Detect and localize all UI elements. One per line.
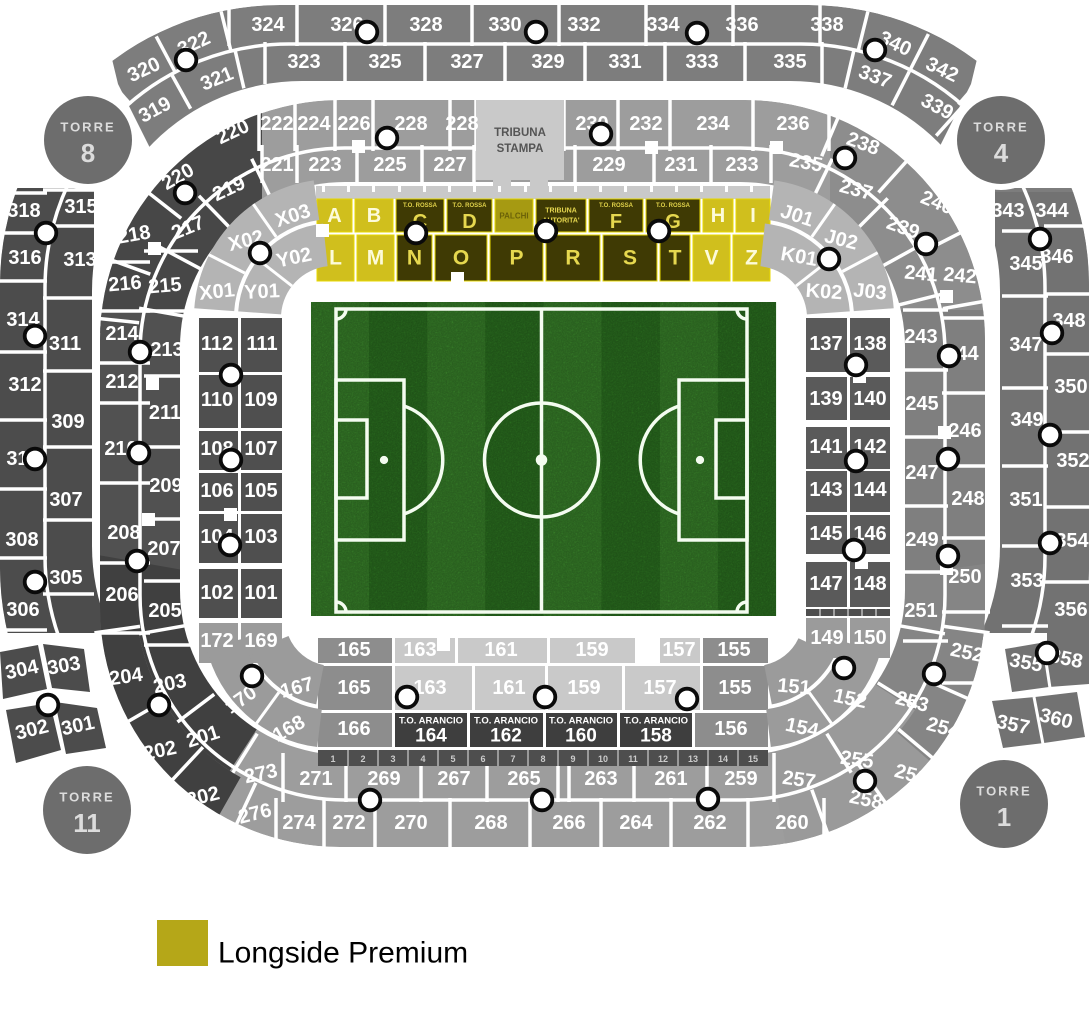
svg-text:1: 1 [330, 754, 335, 764]
svg-text:309: 309 [51, 411, 84, 433]
svg-text:261: 261 [654, 768, 687, 790]
svg-text:212: 212 [105, 371, 138, 393]
svg-text:270: 270 [394, 812, 427, 834]
svg-text:157: 157 [662, 639, 695, 661]
svg-text:325: 325 [368, 51, 401, 73]
svg-text:162: 162 [490, 726, 522, 747]
svg-text:223: 223 [308, 154, 341, 176]
svg-text:172: 172 [200, 630, 233, 652]
svg-text:6: 6 [480, 754, 485, 764]
svg-text:260: 260 [775, 812, 808, 834]
svg-text:226: 226 [337, 113, 370, 135]
svg-text:328: 328 [409, 14, 442, 36]
svg-text:159: 159 [575, 639, 608, 661]
svg-text:PALCHI: PALCHI [499, 212, 528, 221]
svg-text:139: 139 [809, 388, 842, 410]
svg-text:112: 112 [201, 333, 233, 355]
svg-text:103: 103 [244, 526, 277, 548]
svg-text:333: 333 [685, 51, 718, 73]
svg-text:271: 271 [299, 768, 332, 790]
svg-text:227: 227 [433, 154, 466, 176]
svg-text:247: 247 [905, 462, 938, 484]
svg-text:158: 158 [640, 726, 672, 747]
svg-text:T.O. ROSSA: T.O. ROSSA [599, 203, 634, 209]
svg-text:349: 349 [1010, 409, 1043, 431]
svg-text:315: 315 [64, 196, 97, 218]
svg-text:207: 207 [147, 538, 180, 560]
svg-text:347: 347 [1009, 334, 1042, 356]
svg-text:TORRE: TORRE [973, 120, 1028, 135]
svg-text:M: M [367, 247, 385, 270]
svg-text:150: 150 [853, 627, 886, 649]
svg-text:T.O. ROSSA: T.O. ROSSA [656, 203, 691, 209]
svg-text:141: 141 [809, 436, 842, 458]
svg-text:TRIBUNA: TRIBUNA [545, 208, 577, 215]
svg-text:N: N [407, 247, 422, 270]
svg-text:TORRE: TORRE [59, 790, 114, 805]
svg-text:12: 12 [658, 754, 668, 764]
svg-text:2: 2 [360, 754, 365, 764]
svg-text:A: A [327, 205, 341, 227]
svg-text:335: 335 [773, 51, 806, 73]
svg-text:324: 324 [251, 14, 285, 36]
svg-text:259: 259 [724, 768, 757, 790]
svg-text:3: 3 [390, 754, 395, 764]
svg-text:268: 268 [474, 812, 507, 834]
svg-text:311: 311 [49, 333, 81, 355]
svg-text:O: O [453, 247, 469, 270]
svg-text:336: 336 [725, 14, 758, 36]
svg-text:353: 353 [1010, 570, 1043, 592]
svg-text:329: 329 [531, 51, 564, 73]
svg-text:T.O. ROSSA: T.O. ROSSA [403, 203, 438, 209]
svg-text:5: 5 [450, 754, 455, 764]
svg-text:251: 251 [904, 600, 937, 622]
svg-text:305: 305 [49, 567, 82, 589]
svg-text:140: 140 [853, 388, 886, 410]
svg-text:225: 225 [373, 154, 406, 176]
svg-text:312: 312 [8, 374, 41, 396]
svg-text:11: 11 [73, 808, 101, 838]
svg-text:228: 228 [445, 113, 478, 135]
svg-text:143: 143 [809, 479, 842, 501]
svg-text:Z: Z [745, 247, 758, 270]
svg-text:228: 228 [394, 113, 427, 135]
svg-text:156: 156 [714, 718, 747, 740]
svg-text:307: 307 [49, 489, 82, 511]
svg-text:211: 211 [149, 402, 181, 424]
svg-text:327: 327 [450, 51, 483, 73]
svg-text:233: 233 [725, 154, 758, 176]
svg-text:159: 159 [567, 677, 600, 699]
svg-text:330: 330 [488, 14, 521, 36]
svg-text:246: 246 [948, 420, 981, 442]
svg-text:255: 255 [839, 747, 875, 773]
svg-text:165: 165 [337, 677, 370, 699]
svg-text:356: 356 [1054, 599, 1087, 621]
svg-text:316: 316 [8, 247, 41, 269]
svg-text:106: 106 [200, 480, 233, 502]
svg-text:4: 4 [420, 754, 425, 764]
svg-text:111: 111 [246, 333, 277, 355]
svg-text:344: 344 [1035, 200, 1069, 222]
svg-text:107: 107 [244, 438, 277, 460]
svg-text:155: 155 [717, 639, 750, 661]
svg-text:308: 308 [5, 529, 38, 551]
svg-text:11: 11 [628, 754, 638, 764]
svg-text:351: 351 [1009, 489, 1042, 511]
svg-text:TRIBUNA: TRIBUNA [494, 127, 546, 139]
svg-text:229: 229 [592, 154, 625, 176]
svg-text:105: 105 [244, 480, 277, 502]
svg-text:323: 323 [287, 51, 320, 73]
svg-text:331: 331 [608, 51, 641, 73]
svg-text:T: T [669, 247, 682, 270]
svg-text:144: 144 [853, 479, 887, 501]
svg-text:313: 313 [63, 249, 96, 271]
svg-text:241: 241 [903, 262, 938, 287]
svg-text:215: 215 [147, 274, 182, 299]
svg-text:208: 208 [107, 522, 140, 544]
svg-text:V: V [704, 247, 718, 270]
svg-text:272: 272 [332, 812, 365, 834]
svg-text:145: 145 [809, 523, 842, 545]
svg-text:232: 232 [629, 113, 662, 135]
svg-text:269: 269 [367, 768, 400, 790]
svg-text:S: S [623, 247, 637, 270]
svg-text:338: 338 [810, 14, 843, 36]
svg-text:161: 161 [492, 677, 525, 699]
svg-text:137: 137 [809, 333, 842, 355]
svg-text:L: L [329, 247, 342, 270]
svg-text:332: 332 [567, 14, 600, 36]
svg-text:231: 231 [664, 154, 697, 176]
svg-text:243: 243 [904, 326, 937, 348]
svg-text:306: 306 [6, 599, 39, 621]
svg-text:350: 350 [1054, 376, 1087, 398]
svg-text:138: 138 [853, 333, 886, 355]
svg-text:Y01: Y01 [244, 280, 281, 304]
svg-text:209: 209 [149, 475, 182, 497]
svg-text:166: 166 [337, 718, 370, 740]
svg-text:T.O. ROSSA: T.O. ROSSA [452, 203, 487, 209]
svg-text:242: 242 [942, 264, 977, 289]
svg-text:343: 343 [991, 200, 1024, 222]
svg-text:221: 221 [260, 154, 293, 176]
svg-text:102: 102 [200, 582, 233, 604]
svg-text:Longside Premium: Longside Premium [218, 937, 468, 970]
svg-text:151: 151 [776, 675, 811, 700]
svg-text:265: 265 [507, 768, 540, 790]
svg-text:213: 213 [150, 339, 183, 361]
svg-text:257: 257 [781, 767, 817, 793]
svg-text:160: 160 [565, 726, 597, 747]
svg-text:D: D [462, 211, 476, 233]
svg-text:163: 163 [403, 639, 436, 661]
svg-text:F: F [610, 211, 622, 233]
svg-text:B: B [367, 205, 381, 227]
svg-text:274: 274 [282, 812, 316, 834]
svg-text:109: 109 [244, 389, 277, 411]
svg-text:234: 234 [696, 113, 730, 135]
svg-text:155: 155 [718, 677, 751, 699]
svg-text:264: 264 [619, 812, 653, 834]
svg-text:248: 248 [951, 488, 984, 510]
svg-text:164: 164 [415, 726, 447, 747]
svg-text:206: 206 [105, 584, 138, 606]
svg-text:110: 110 [201, 389, 233, 411]
svg-text:165: 165 [337, 639, 370, 661]
svg-text:STAMPA: STAMPA [497, 143, 544, 155]
svg-text:216: 216 [107, 272, 142, 297]
svg-text:14: 14 [718, 754, 728, 764]
svg-text:250: 250 [948, 566, 981, 588]
svg-text:249: 249 [905, 529, 938, 551]
svg-text:148: 148 [853, 573, 886, 595]
svg-text:157: 157 [643, 677, 676, 699]
svg-text:7: 7 [510, 754, 515, 764]
svg-text:267: 267 [437, 768, 470, 790]
svg-text:1: 1 [997, 802, 1011, 832]
svg-text:352: 352 [1056, 450, 1089, 472]
svg-text:8: 8 [540, 754, 545, 764]
svg-text:TORRE: TORRE [976, 784, 1031, 799]
svg-text:101: 101 [244, 582, 277, 604]
svg-text:10: 10 [598, 754, 608, 764]
svg-text:H: H [711, 205, 725, 227]
svg-text:I: I [750, 205, 756, 227]
svg-text:345: 345 [1009, 253, 1042, 275]
svg-text:205: 205 [148, 600, 181, 622]
svg-text:169: 169 [244, 630, 277, 652]
svg-text:K02: K02 [805, 280, 843, 305]
svg-text:334: 334 [646, 14, 680, 36]
svg-text:318: 318 [7, 200, 40, 222]
svg-text:161: 161 [484, 639, 517, 661]
svg-text:266: 266 [552, 812, 585, 834]
svg-text:224: 224 [297, 113, 331, 135]
svg-text:8: 8 [81, 138, 95, 168]
svg-text:15: 15 [748, 754, 758, 764]
svg-text:13: 13 [688, 754, 698, 764]
svg-text:J03: J03 [852, 279, 887, 304]
svg-text:TORRE: TORRE [60, 120, 115, 135]
svg-text:263: 263 [584, 768, 617, 790]
svg-text:245: 245 [905, 393, 938, 415]
svg-text:222: 222 [260, 113, 293, 135]
svg-text:4: 4 [994, 138, 1009, 168]
svg-text:147: 147 [809, 573, 842, 595]
svg-text:P: P [509, 247, 523, 270]
svg-text:149: 149 [810, 627, 843, 649]
svg-text:9: 9 [570, 754, 575, 764]
svg-text:R: R [565, 247, 580, 270]
svg-text:X01: X01 [198, 279, 236, 305]
svg-text:262: 262 [693, 812, 726, 834]
svg-text:236: 236 [776, 113, 809, 135]
